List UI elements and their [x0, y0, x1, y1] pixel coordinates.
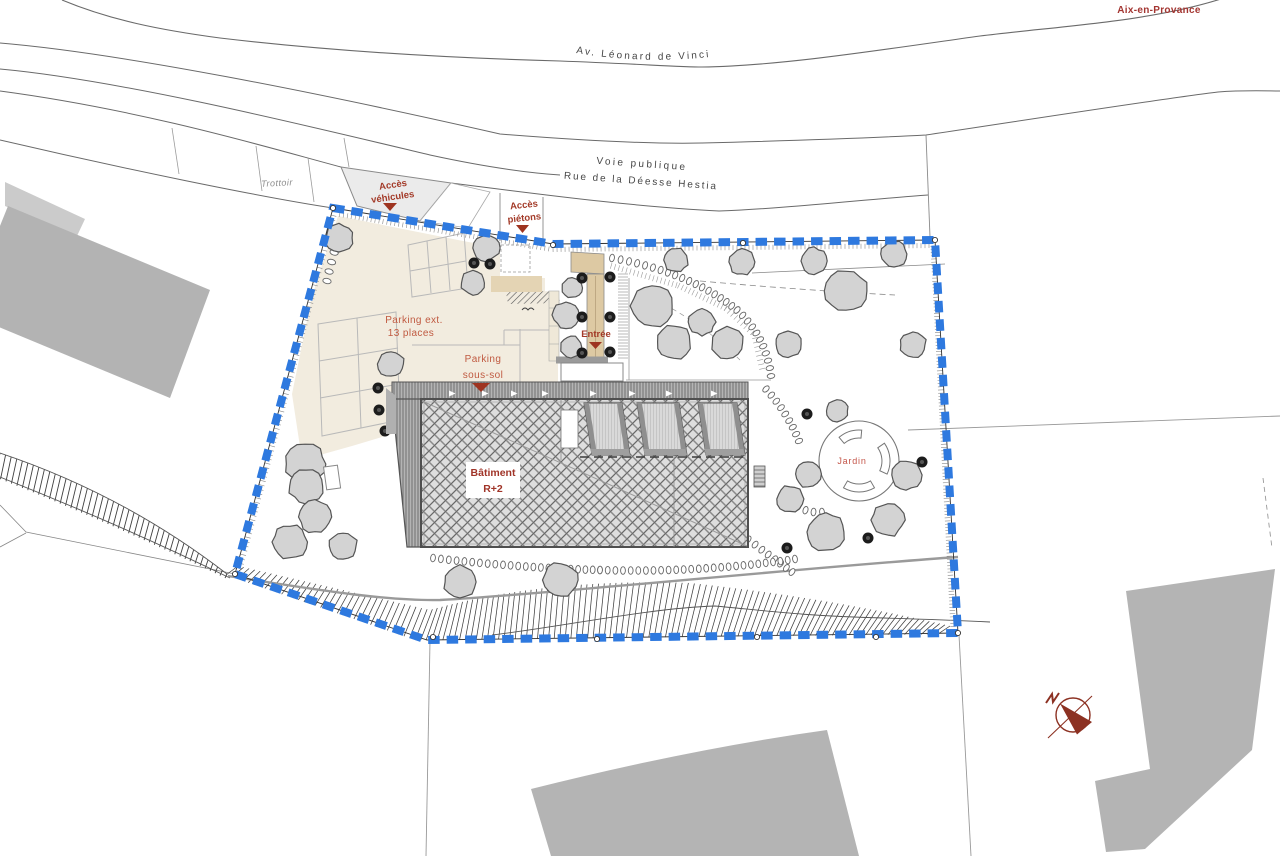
svg-text:Bâtiment: Bâtiment [471, 467, 516, 479]
svg-text:Aix-en-Provance: Aix-en-Provance [1117, 5, 1201, 16]
svg-text:R+2: R+2 [483, 483, 503, 495]
svg-text:Jardin: Jardin [837, 456, 866, 466]
svg-text:sous-sol: sous-sol [463, 370, 503, 381]
svg-text:Trottoir: Trottoir [261, 177, 294, 189]
svg-text:13 places: 13 places [388, 328, 434, 339]
svg-text:Parking ext.: Parking ext. [385, 315, 443, 326]
svg-text:Entrée: Entrée [581, 329, 611, 340]
svg-text:Parking: Parking [465, 354, 502, 365]
